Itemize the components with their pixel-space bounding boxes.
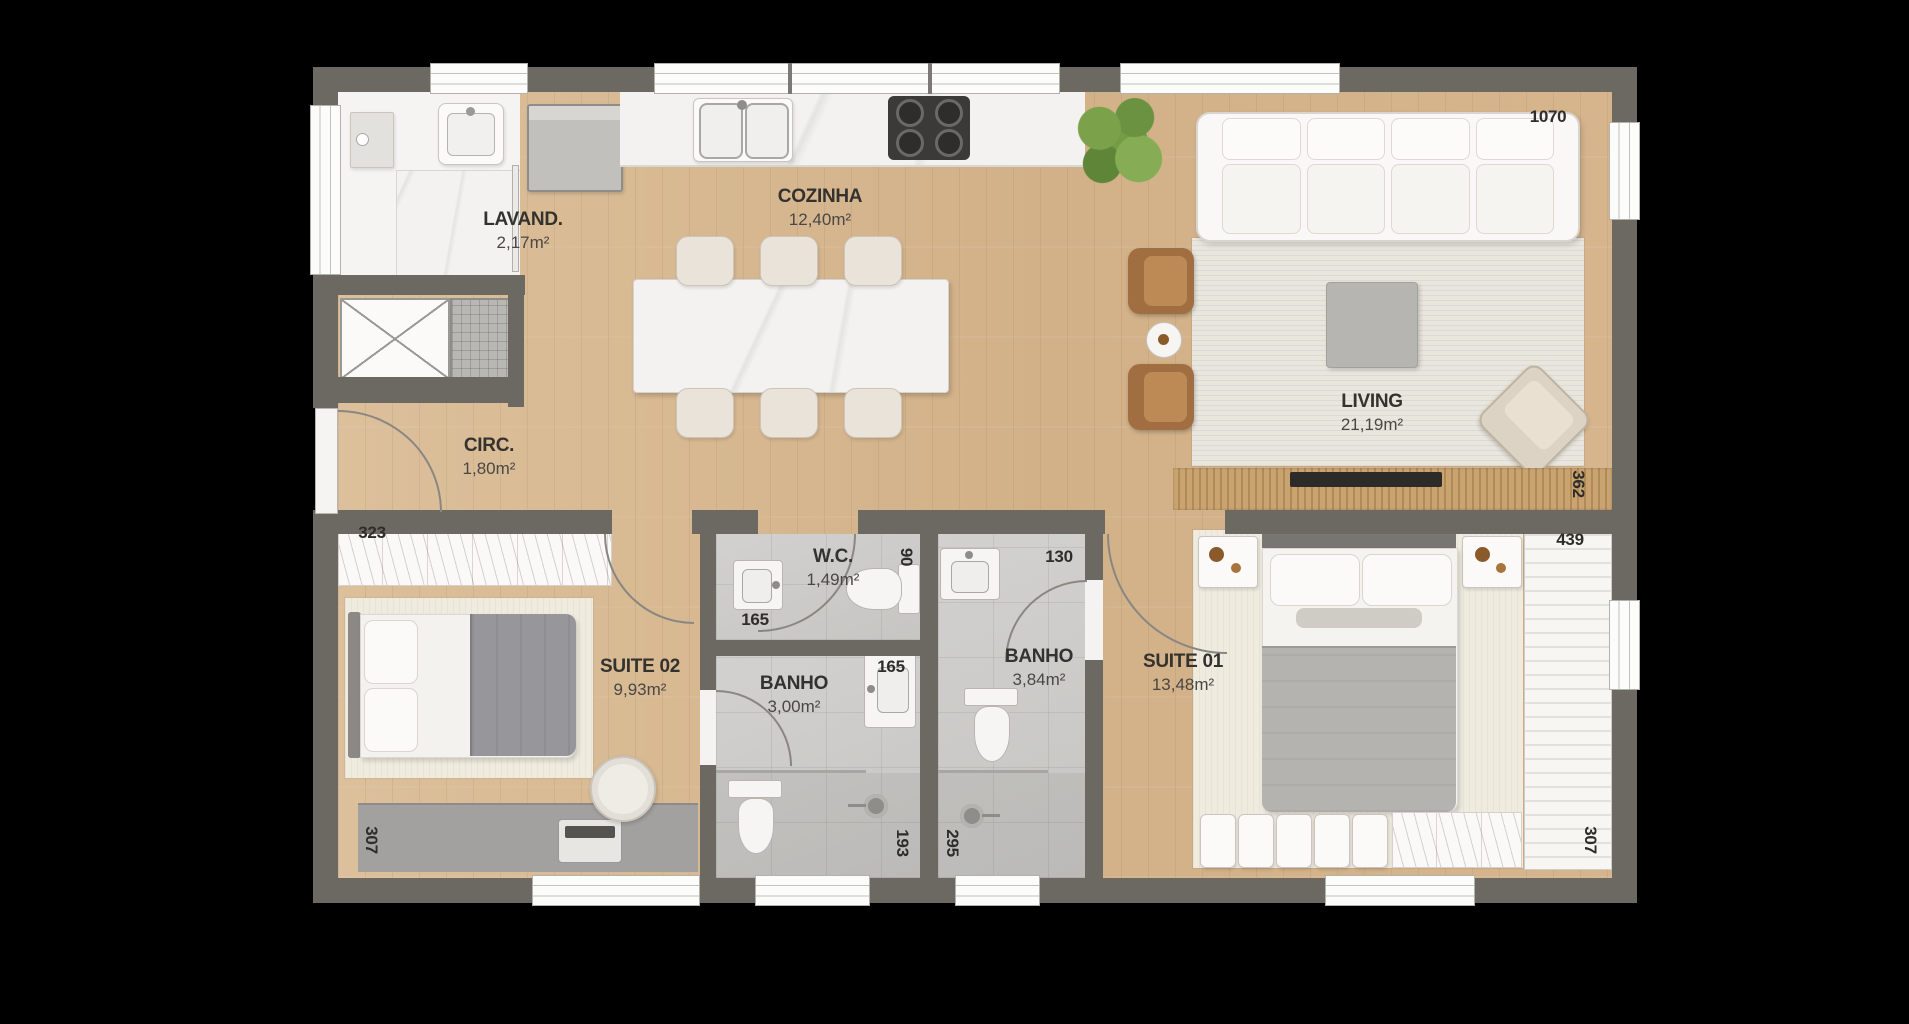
banho02-door-leaf (700, 690, 716, 765)
suite02-bed (348, 612, 574, 758)
room-label-circulacao: CIRC. 1,80m² (463, 434, 516, 479)
shaft-box (340, 298, 450, 380)
island-chair (676, 236, 734, 286)
room-name: SUITE 01 (1143, 650, 1223, 674)
room-area: 12,40m² (778, 209, 862, 230)
burner-icon (896, 99, 924, 127)
banho02-toilet-tank (728, 780, 782, 798)
dim-panel-right: 362 (1568, 470, 1588, 497)
burner-icon (935, 99, 963, 127)
armchair-seat (1144, 372, 1187, 422)
armchair-seat (1144, 256, 1187, 306)
desk-chair (590, 756, 656, 822)
laundry-cabinet-knob-icon (356, 133, 369, 146)
shower-head-icon (960, 804, 984, 828)
wall (920, 534, 938, 878)
window (1609, 600, 1640, 690)
suite01-hanging-closet (1392, 812, 1522, 868)
kitchen-sink-basin-left (699, 103, 743, 159)
tv-icon (1290, 472, 1442, 487)
bed-blanket (470, 614, 576, 756)
banho01-toilet-tank (964, 688, 1018, 706)
coffee-table (1326, 282, 1418, 368)
washing-machine (450, 298, 512, 380)
banho01-vanity (940, 548, 1000, 600)
wall (700, 765, 716, 878)
wall (1612, 220, 1637, 600)
dresser-drawer (1200, 814, 1236, 868)
room-label-lavanderia: LAVAND. 2,17m² (483, 208, 563, 253)
room-area: 2,17m² (483, 232, 563, 253)
sofa-seat-cushions (1222, 164, 1554, 234)
decor-icon (1496, 563, 1506, 573)
window (755, 875, 870, 906)
wall (858, 510, 1105, 534)
room-name: SUITE 02 (600, 655, 680, 679)
room-label-cozinha: COZINHA 12,40m² (778, 185, 862, 230)
window (1120, 63, 1340, 94)
laundry-cabinet (350, 112, 394, 168)
window (430, 63, 528, 94)
window (1609, 122, 1640, 220)
room-name: COZINHA (778, 185, 862, 209)
dim-suite02-left: 307 (361, 826, 381, 853)
room-name: LIVING (1341, 390, 1403, 414)
wall (1612, 690, 1637, 903)
room-area: 3,84m² (1005, 669, 1073, 690)
wall (1085, 660, 1103, 878)
wall (1225, 510, 1612, 534)
island-chair (760, 236, 818, 286)
window (1325, 875, 1475, 906)
burner-icon (935, 129, 963, 157)
window (310, 105, 341, 275)
kitchen-counter (620, 92, 1085, 167)
dim-suite02-closet: 323 (358, 523, 385, 543)
kitchen-island (633, 279, 949, 393)
armchair (1128, 248, 1194, 314)
dim-wc-vanity: 165 (741, 610, 768, 630)
bed-pillow (1362, 554, 1452, 606)
wall (1612, 67, 1637, 122)
bed-accent-pillow (1296, 608, 1422, 628)
nightstand (1462, 536, 1522, 588)
entry-door-leaf (315, 408, 338, 514)
dim-banho-suite02-shower: 193 (892, 829, 912, 856)
room-label-banho-suite02: BANHO 3,00m² (760, 672, 828, 717)
window (532, 875, 700, 906)
room-label-suite01: SUITE 01 13,48m² (1143, 650, 1223, 695)
dresser-drawer (1276, 814, 1312, 868)
room-label-living: LIVING 21,19m² (1341, 390, 1403, 435)
room-label-suite02: SUITE 02 9,93m² (600, 655, 680, 700)
wall (1340, 67, 1637, 92)
room-area: 13,48m² (1143, 674, 1223, 695)
wall (1060, 67, 1120, 92)
refrigerator (527, 104, 623, 192)
window (654, 63, 1060, 94)
bed-blanket (1262, 646, 1456, 812)
room-name: CIRC. (463, 434, 516, 458)
faucet-icon (867, 685, 875, 693)
decor-icon (1231, 563, 1241, 573)
wall (716, 640, 920, 656)
room-name: W.C. (807, 545, 860, 569)
dim-banho-suite01-shower: 295 (942, 829, 962, 856)
kitchen-sink (693, 98, 793, 162)
room-name: BANHO (760, 672, 828, 696)
room-area: 1,80m² (463, 458, 516, 479)
wall (870, 878, 955, 903)
window-mullion (928, 63, 932, 94)
window (955, 875, 1040, 906)
suite01-closet (1524, 530, 1612, 870)
room-label-banho-suite01: BANHO 3,84m² (1005, 645, 1073, 690)
bed-pillow (1270, 554, 1360, 606)
vanity-basin (951, 561, 989, 593)
wall (313, 67, 338, 105)
dresser-drawer (1352, 814, 1388, 868)
wall (313, 878, 532, 903)
shower-hose (982, 814, 1000, 817)
faucet-icon (965, 551, 973, 559)
armchair (1128, 364, 1194, 430)
dresser-drawer (1314, 814, 1350, 868)
burner-icon (896, 129, 924, 157)
wall (313, 377, 524, 403)
shower-hose (848, 804, 866, 807)
banho02-toilet-bowl (738, 798, 774, 854)
wall (1085, 534, 1103, 580)
shower-area-shade (938, 773, 1085, 878)
island-chair (844, 388, 902, 438)
kitchen-faucet-icon (737, 100, 747, 110)
decor-icon (1475, 547, 1490, 562)
banho01-toilet-bowl (974, 706, 1010, 762)
kitchen-sink-basin-right (745, 103, 789, 159)
room-area: 21,19m² (1341, 414, 1403, 435)
island-chair (676, 388, 734, 438)
decor-icon (1158, 334, 1169, 345)
room-area: 9,93m² (600, 679, 680, 700)
dim-living-window: 1070 (1530, 107, 1567, 127)
laptop-icon (558, 819, 622, 863)
laundry-faucet-icon (466, 107, 475, 116)
dim-banho-suite02-vanity: 165 (877, 657, 904, 677)
phone-icon (646, 833, 662, 859)
room-area: 1,49m² (807, 569, 860, 590)
dim-suite01-right: 307 (1580, 826, 1600, 853)
sofa-back-cushions (1222, 118, 1554, 160)
plant-icon (1070, 94, 1168, 192)
bed-pillow (364, 620, 418, 684)
desk (358, 803, 698, 872)
wall (313, 275, 525, 295)
suite01-bed (1262, 532, 1456, 810)
window-mullion (788, 63, 792, 94)
dresser-drawer (1238, 814, 1274, 868)
shower-head-icon (864, 794, 888, 818)
room-name: BANHO (1005, 645, 1073, 669)
wall (528, 67, 654, 92)
cooktop (888, 96, 970, 160)
island-chair (844, 236, 902, 286)
room-label-wc: W.C. 1,49m² (807, 545, 860, 590)
floorplan-canvas: LAVAND. 2,17m² COZINHA 12,40m² LIVING 21… (0, 0, 1909, 1024)
wall (700, 878, 755, 903)
room-area: 3,00m² (760, 696, 828, 717)
wall (700, 510, 716, 690)
dim-banho-suite01-width: 130 (1045, 547, 1072, 567)
bed-pillow (364, 688, 418, 752)
wall (313, 512, 338, 903)
banho01-door-leaf (1085, 580, 1103, 660)
dim-suite01-closet: 439 (1556, 530, 1583, 550)
sofa (1196, 112, 1580, 242)
laundry-sink (438, 103, 504, 165)
room-name: LAVAND. (483, 208, 563, 232)
island-chair (760, 388, 818, 438)
dim-wc-width: 90 (896, 548, 916, 566)
side-table (1146, 322, 1182, 358)
laundry-sink-basin (447, 113, 495, 156)
wall (1040, 878, 1325, 903)
